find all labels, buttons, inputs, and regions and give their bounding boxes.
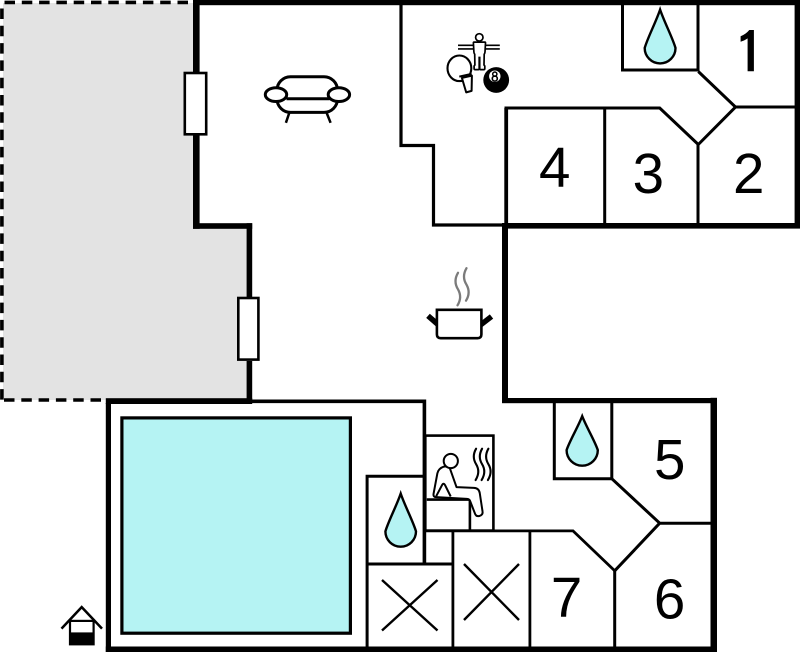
svg-text:7: 7 — [551, 566, 582, 629]
svg-text:3: 3 — [633, 142, 664, 205]
svg-text:6: 6 — [654, 568, 685, 631]
svg-text:4: 4 — [539, 136, 570, 199]
svg-text:2: 2 — [733, 142, 764, 205]
svg-text:5: 5 — [654, 428, 685, 491]
